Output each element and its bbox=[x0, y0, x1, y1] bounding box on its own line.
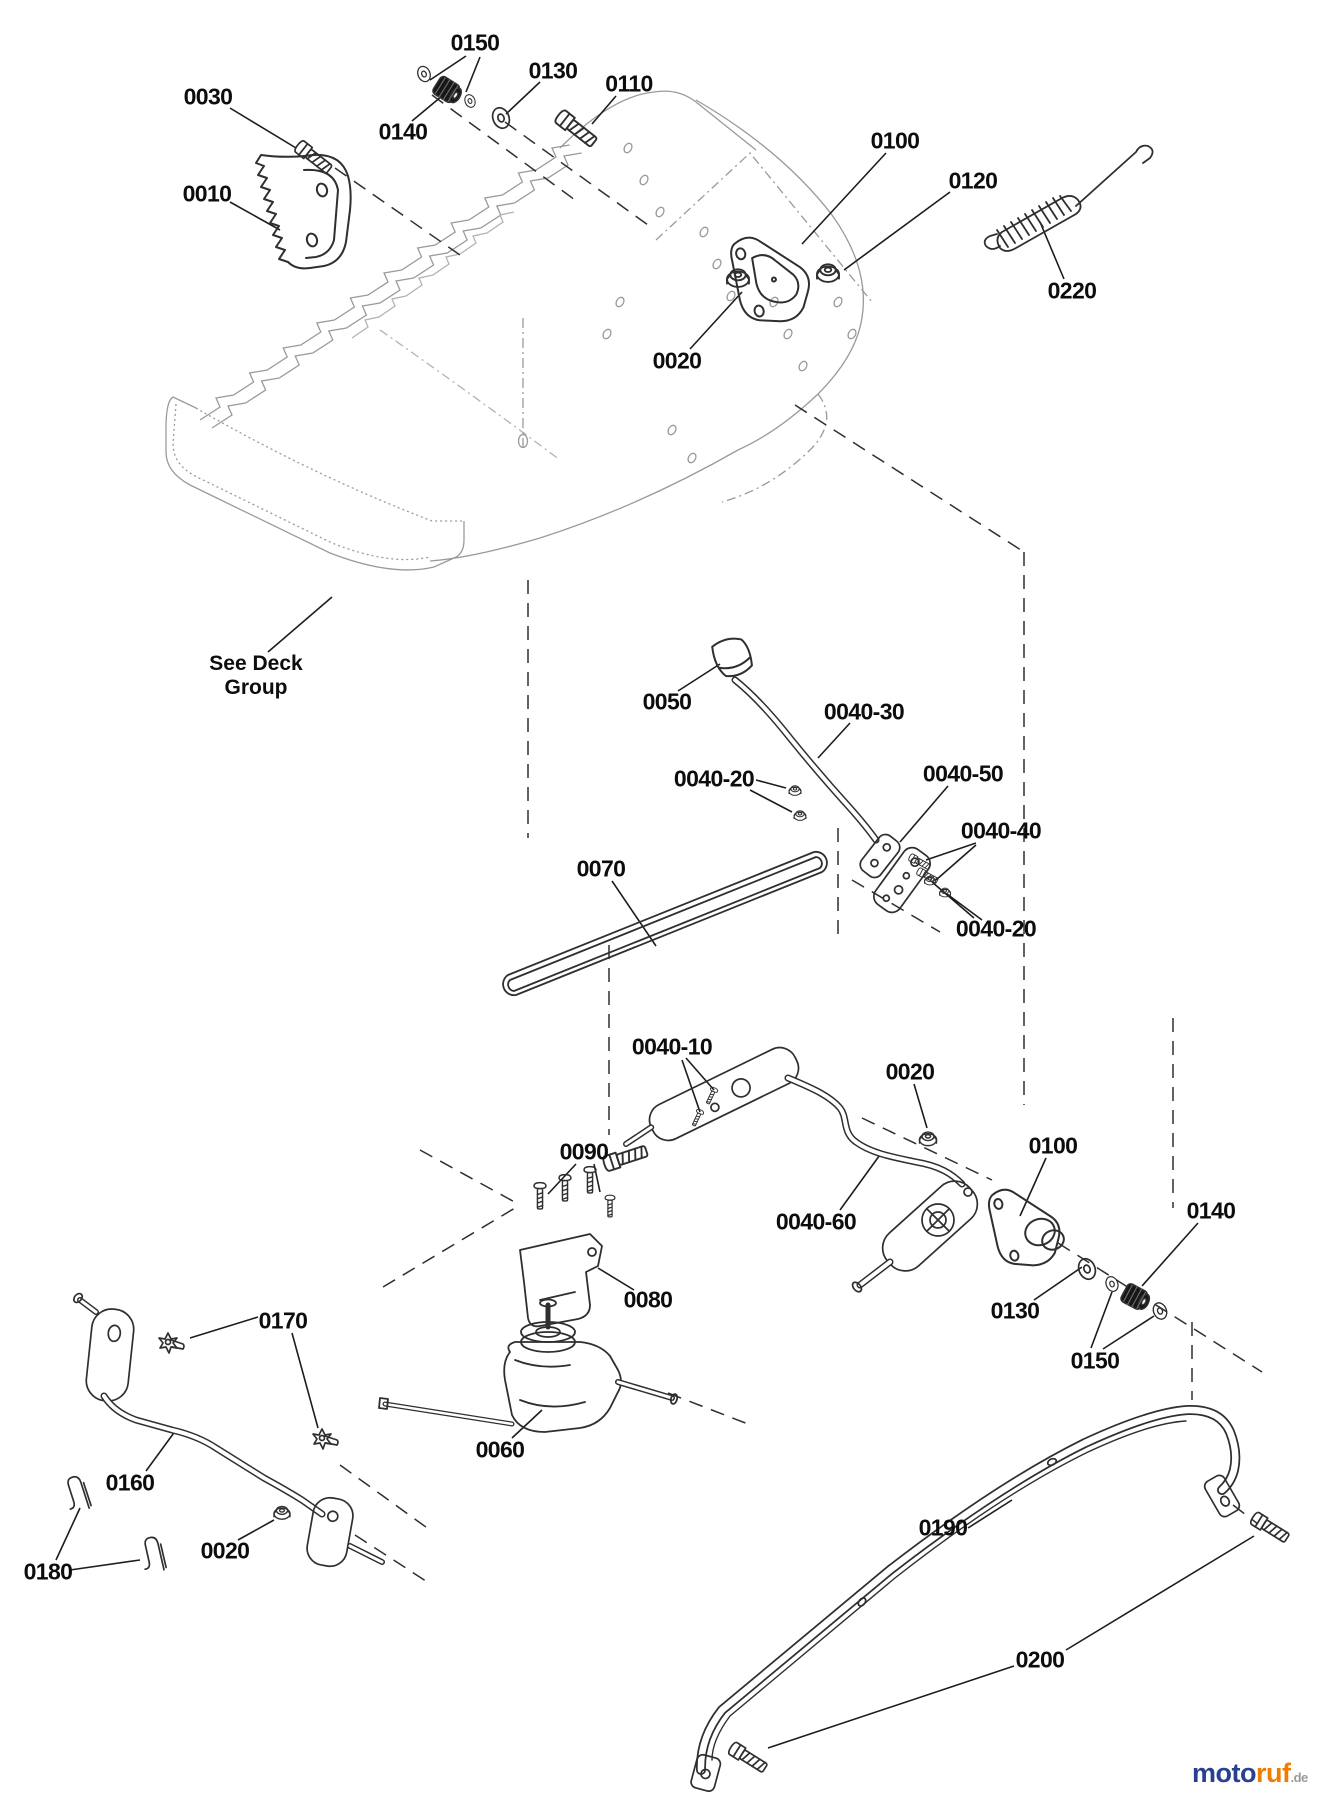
parts-drawing bbox=[56, 64, 1291, 1792]
screw-0090-d bbox=[605, 1195, 615, 1217]
bolt-0110 bbox=[554, 109, 599, 149]
part-label-0170-26: 0170 bbox=[259, 1308, 308, 1335]
deck-outline-drawing bbox=[166, 91, 872, 570]
guard-bracket bbox=[520, 1234, 602, 1326]
part-label-0160-28: 0160 bbox=[106, 1470, 155, 1497]
part-label-0020-9: 0020 bbox=[653, 348, 702, 375]
nut-0040-20-a bbox=[789, 786, 801, 796]
washer-0130-mid bbox=[1076, 1256, 1099, 1281]
height-lever-assembly bbox=[56, 1292, 382, 1578]
flange-nut-0020-left bbox=[727, 269, 749, 287]
screw-0040-10-b bbox=[690, 1108, 704, 1127]
motoruf-watermark: motoruf.de bbox=[1192, 1758, 1308, 1789]
cam-lever-part bbox=[256, 155, 351, 269]
see-deck-group-note: See Deck Group bbox=[191, 652, 321, 700]
parts-diagram-page: 0030015001300110014000100100012002200020… bbox=[0, 0, 1324, 1800]
part-label-0090-19: 0090 bbox=[560, 1139, 609, 1166]
knurled-nut-0140-mid bbox=[1120, 1283, 1153, 1313]
part-label-0140-4: 0140 bbox=[379, 119, 428, 146]
bolt-0200-a bbox=[1249, 1511, 1290, 1544]
bolt-0040-10 bbox=[602, 1143, 649, 1171]
part-label-0040-60-22: 0040-60 bbox=[776, 1209, 856, 1236]
washer-0150-b bbox=[463, 93, 477, 109]
part-label-0100-20: 0100 bbox=[1029, 1133, 1078, 1160]
push-nut-0170-a bbox=[159, 1333, 184, 1353]
part-label-0110-3: 0110 bbox=[605, 71, 653, 98]
part-label-0020-29: 0020 bbox=[201, 1538, 250, 1565]
screw-0090-a bbox=[534, 1183, 546, 1209]
extension-spring bbox=[985, 146, 1153, 251]
part-label-0100-6: 0100 bbox=[871, 128, 920, 155]
exploded-diagram-drawing bbox=[0, 0, 1324, 1800]
part-label-0200-32: 0200 bbox=[1016, 1647, 1065, 1674]
part-label-0020-18: 0020 bbox=[886, 1059, 935, 1086]
part-label-0070-15: 0070 bbox=[577, 856, 626, 883]
part-label-0040-20-16: 0040-20 bbox=[956, 916, 1036, 943]
part-label-0040-20-12: 0040-20 bbox=[674, 766, 754, 793]
part-label-0050-10: 0050 bbox=[643, 689, 692, 716]
hairpin-clip-0180-b bbox=[132, 1534, 172, 1578]
washer-0150-a bbox=[415, 64, 432, 83]
part-label-0190-31: 0190 bbox=[919, 1515, 968, 1542]
lever-knob bbox=[710, 634, 755, 680]
part-label-0040-40-14: 0040-40 bbox=[961, 818, 1041, 845]
part-label-0060-27: 0060 bbox=[476, 1437, 525, 1464]
flange-nut-0020-bottom bbox=[274, 1506, 290, 1519]
washer-0130-top bbox=[490, 105, 513, 130]
bolt-0200-b bbox=[727, 1741, 768, 1774]
nut-0040-20-b bbox=[794, 811, 806, 821]
screw-0090-b bbox=[559, 1175, 571, 1201]
projection-dashed-lines bbox=[335, 95, 1262, 1585]
note-line-1: See Deck bbox=[191, 652, 321, 676]
part-label-0030-0: 0030 bbox=[184, 84, 233, 111]
rod-hinge-plate bbox=[857, 831, 903, 880]
part-label-0130-24: 0130 bbox=[991, 1298, 1040, 1325]
leader-lines bbox=[56, 56, 1254, 1748]
part-label-0120-7: 0120 bbox=[949, 168, 998, 195]
watermark-domain: .de bbox=[1290, 1770, 1307, 1785]
part-label-0180-30: 0180 bbox=[24, 1559, 73, 1586]
part-label-0150-1: 0150 bbox=[451, 30, 500, 57]
part-label-0080-23: 0080 bbox=[624, 1287, 673, 1314]
drive-belt bbox=[503, 852, 827, 995]
part-label-0220-8: 0220 bbox=[1048, 278, 1097, 305]
watermark-ruf: ruf bbox=[1256, 1758, 1291, 1788]
cover-plate-top bbox=[726, 226, 817, 331]
part-label-0040-10-17: 0040-10 bbox=[632, 1034, 712, 1061]
part-label-0140-21: 0140 bbox=[1187, 1198, 1236, 1225]
flange-nut-0020-mid bbox=[920, 1132, 937, 1146]
flange-nut-0120 bbox=[817, 264, 839, 282]
watermark-moto: moto bbox=[1192, 1758, 1256, 1788]
washer-0150-c bbox=[1104, 1275, 1120, 1293]
part-label-0040-50-13: 0040-50 bbox=[923, 761, 1003, 788]
push-nut-0170-b bbox=[313, 1429, 338, 1449]
screw-0090-c bbox=[584, 1167, 596, 1193]
note-line-2: Group bbox=[191, 676, 321, 700]
hairpin-clip-0180-a bbox=[56, 1473, 98, 1517]
part-label-0130-2: 0130 bbox=[529, 58, 578, 85]
washer-0150-d bbox=[1151, 1301, 1169, 1321]
part-label-0010-5: 0010 bbox=[183, 181, 232, 208]
part-label-0150-25: 0150 bbox=[1071, 1348, 1120, 1375]
screw-0040-10-a bbox=[704, 1086, 718, 1105]
handle-bar bbox=[690, 1410, 1242, 1793]
part-label-0040-30-11: 0040-30 bbox=[824, 699, 904, 726]
